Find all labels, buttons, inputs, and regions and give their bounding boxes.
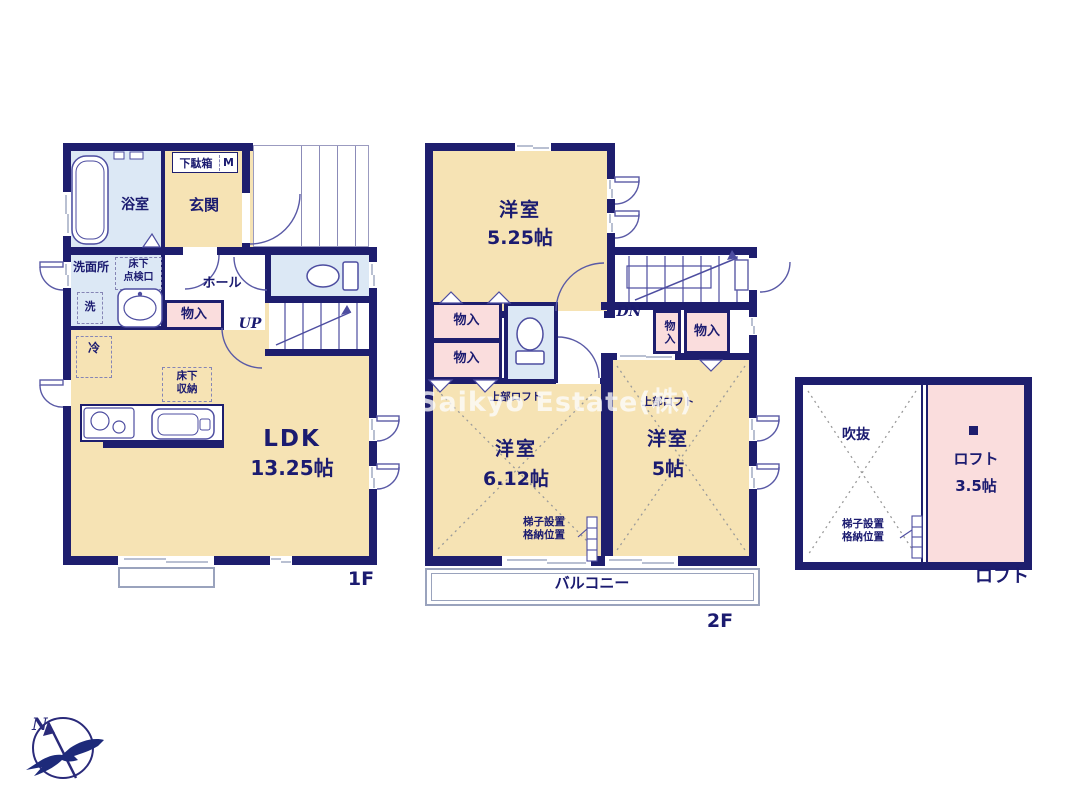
floor-plan-canvas: 下駄箱 M <box>0 0 1067 800</box>
bedroom2-label: 洋室 <box>458 438 574 461</box>
porch-line <box>319 146 320 246</box>
window <box>607 211 615 235</box>
void-label: 吹抜 <box>828 427 884 444</box>
loft-room-label: ロフト <box>944 450 1008 468</box>
shoe-cabinet: 下駄箱 M <box>172 152 238 173</box>
balcony-label: バルコニー <box>540 574 644 592</box>
window <box>369 464 377 491</box>
ladder-note-1: 梯子設置 <box>842 518 884 530</box>
window <box>749 464 757 491</box>
fridge-label: 冷 <box>82 341 106 355</box>
storage-label: 物入 <box>441 351 492 367</box>
f1-toilet-area <box>271 255 369 296</box>
sliding-door <box>615 353 677 360</box>
window <box>749 315 757 337</box>
kitchen-counter-wall <box>103 441 224 448</box>
bedroom3-label: 洋室 <box>623 428 713 451</box>
wall <box>265 349 377 356</box>
window <box>607 177 615 201</box>
loft-divider <box>926 385 928 562</box>
f1-stairs-area <box>269 303 369 349</box>
wall <box>265 296 377 303</box>
bedroom1-label: 洋室 <box>462 199 578 222</box>
wall <box>71 326 161 330</box>
ldk-label: LDK <box>234 426 350 454</box>
loft-post <box>969 426 978 435</box>
ladder-note-2: 格納位置 <box>523 529 565 541</box>
storage-label: 物入 <box>168 307 220 323</box>
window <box>268 556 294 565</box>
floor2-label: 2F <box>698 610 742 633</box>
window <box>116 556 216 565</box>
window <box>369 260 377 290</box>
window <box>513 143 553 151</box>
kitchen-counter <box>80 404 224 442</box>
wall <box>749 247 757 566</box>
window <box>749 416 757 443</box>
floor-storage-label-2: 収納 <box>177 383 198 395</box>
hall-label: ホール <box>196 276 248 292</box>
door-gap <box>749 258 757 290</box>
window <box>63 190 71 238</box>
wall <box>63 247 377 255</box>
shoe-cabinet-label: 下駄箱 <box>173 155 220 171</box>
watermark: Saikyo Estate(株) <box>418 380 693 419</box>
window <box>603 556 680 566</box>
floor-storage-label-1: 床下 <box>177 370 198 382</box>
washer-label: 洗 <box>79 300 101 313</box>
shoe-cabinet-mirror-label: M <box>220 156 237 169</box>
bedroom1-size-label: 5.25帖 <box>462 227 578 250</box>
ladder-note-2: 格納位置 <box>842 531 884 543</box>
f1-terrace <box>118 567 215 588</box>
loft-floor-label: ロフト <box>972 566 1032 588</box>
storage-label: 物入 <box>687 324 727 340</box>
door-gap <box>63 380 71 406</box>
window <box>369 416 377 443</box>
ladder-note-1: 梯子設置 <box>523 516 565 528</box>
door-gap <box>552 311 604 318</box>
porch-line <box>301 146 302 246</box>
storage-label-vertical: 物入 <box>658 314 676 352</box>
hatch-label-1: 床下 <box>129 259 149 270</box>
wall <box>607 247 757 255</box>
washroom-label: 洗面所 <box>67 260 115 274</box>
dn-label: DN <box>612 304 646 321</box>
compass-north-label: N <box>31 715 49 735</box>
porch-line <box>355 146 356 246</box>
front-door-gap <box>242 193 250 243</box>
wall <box>265 255 271 296</box>
wall <box>63 143 253 151</box>
bedroom3-size-label: 5帖 <box>623 458 713 481</box>
compass-icon: N <box>26 715 104 778</box>
porch-line <box>337 146 338 246</box>
hatch-label-2: 点検口 <box>124 272 154 283</box>
storage-label: 物入 <box>441 313 492 329</box>
loft-divider <box>921 385 923 562</box>
window <box>500 556 593 566</box>
loft-size-label: 3.5帖 <box>944 477 1008 495</box>
wall <box>369 247 377 565</box>
f1-entrance-porch <box>253 145 369 247</box>
ldk-size-label: 13.25帖 <box>234 456 350 480</box>
wall <box>63 556 377 565</box>
entrance-label: 玄関 <box>176 196 232 214</box>
bathroom-label: 浴室 <box>108 197 162 214</box>
door-gap <box>183 247 217 255</box>
floor1-label: 1F <box>341 568 381 591</box>
up-label: UP <box>234 316 266 333</box>
loft-room-area <box>928 385 1024 562</box>
f2-toilet-room <box>504 302 558 383</box>
bedroom2-size-label: 6.12帖 <box>458 468 574 491</box>
bird-silhouette-icon <box>26 739 104 776</box>
